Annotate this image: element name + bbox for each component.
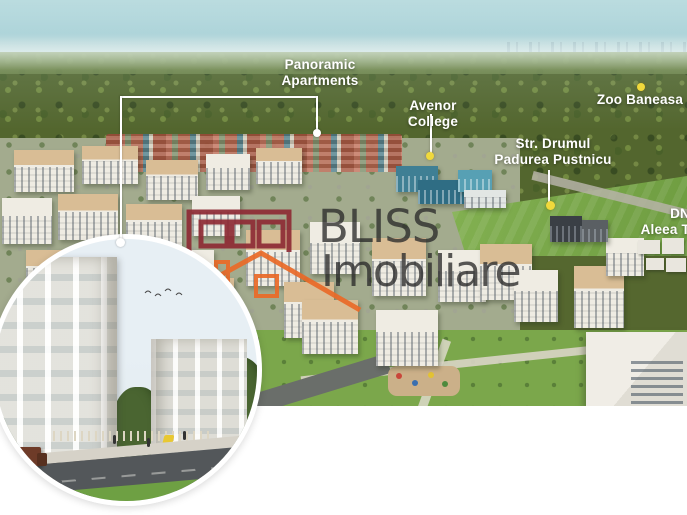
playground	[388, 366, 460, 396]
marker-zoo-baneasa	[637, 83, 645, 91]
marker-street	[546, 201, 555, 210]
label-line: Padurea Pustnicu	[483, 152, 623, 168]
person	[113, 435, 116, 444]
label-line: Str. Drumul	[483, 136, 623, 152]
inset-truck	[1, 447, 41, 466]
avenor-college-building	[458, 170, 492, 192]
logo-window	[259, 222, 283, 246]
label-avenor-college: Avenor College	[383, 98, 483, 130]
label-line: Panoramic	[250, 57, 390, 73]
house	[638, 240, 660, 254]
truck-cab	[37, 453, 47, 466]
building	[464, 190, 506, 208]
building	[256, 148, 302, 184]
panoramic-inset-dot	[116, 238, 125, 247]
label-dn-aleea: DN Aleea T	[600, 206, 687, 238]
building	[14, 150, 74, 192]
label-line: Apartments	[250, 73, 390, 89]
logo-window	[201, 222, 227, 246]
building	[146, 160, 198, 200]
house	[662, 238, 684, 254]
truck-wheel	[6, 463, 12, 469]
building	[514, 270, 558, 322]
label-str-drumul-padurea-pustnicu: Str. Drumul Padurea Pustnicu	[483, 136, 623, 168]
building	[2, 198, 52, 244]
panoramic-leader-line	[316, 96, 318, 132]
building	[586, 332, 687, 406]
render-inset-circle	[0, 234, 262, 506]
birds	[143, 285, 189, 301]
label-panoramic-apartments: Panoramic Apartments	[250, 57, 390, 89]
building	[376, 310, 438, 366]
watermark-brand-name: BLISS	[318, 204, 439, 249]
person	[147, 438, 150, 447]
label-zoo-baneasa: Zoo Baneasa	[592, 92, 687, 108]
panoramic-leader-line	[120, 96, 318, 98]
building	[550, 216, 582, 242]
building	[82, 146, 138, 184]
label-line: DN	[600, 206, 687, 222]
panoramic-leader-line	[120, 96, 122, 242]
house	[666, 258, 686, 272]
house	[646, 258, 664, 270]
building	[206, 154, 250, 190]
logo-window	[232, 222, 253, 246]
building	[58, 194, 118, 240]
marketing-image: BLISS Imobiliare Panoramic Apartments Av…	[0, 0, 687, 515]
panoramic-marker-dot	[313, 129, 321, 137]
watermark-brand-suffix: Imobiliare	[321, 250, 520, 294]
logo-house-window	[256, 276, 277, 296]
person	[183, 431, 186, 440]
truck-wheel	[29, 463, 35, 469]
street-leader-line	[548, 170, 550, 203]
marker-avenor-college	[426, 152, 434, 160]
label-line: Aleea T	[600, 222, 687, 238]
